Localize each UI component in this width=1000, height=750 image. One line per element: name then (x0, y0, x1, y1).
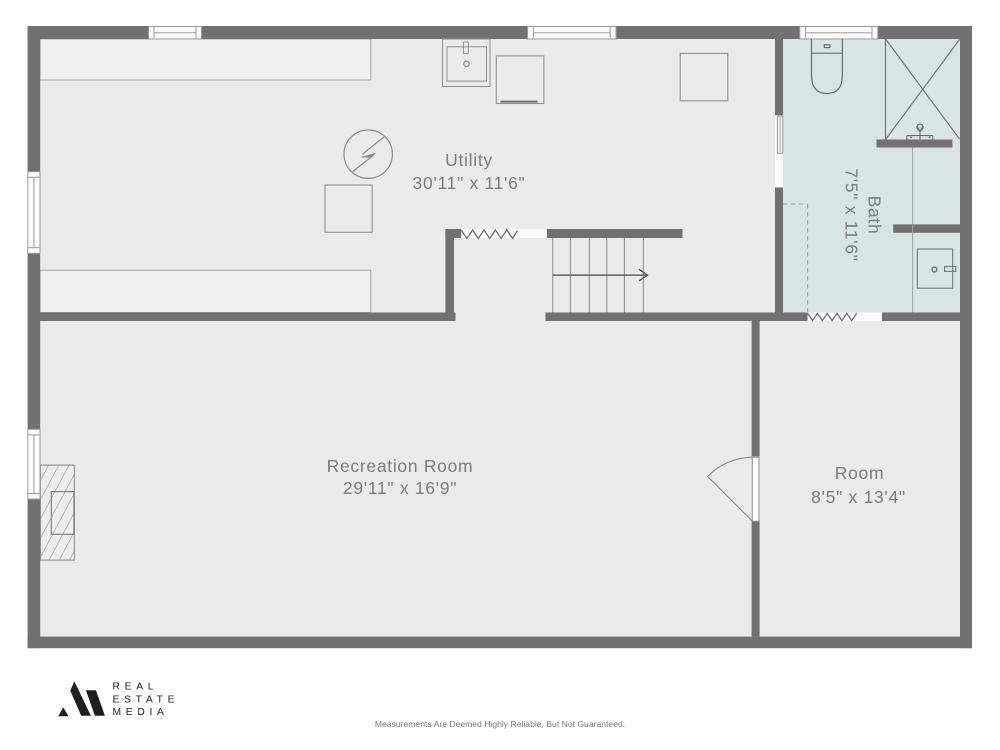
svg-text:Recreation Room: Recreation Room (327, 456, 474, 476)
svg-text:REAL: REAL (113, 682, 159, 693)
svg-text:Room: Room (835, 463, 884, 483)
svg-text:Bath: Bath (865, 196, 885, 235)
svg-text:ESTATE: ESTATE (113, 695, 180, 706)
svg-text:MEDIA: MEDIA (113, 707, 169, 718)
svg-text:Utility: Utility (445, 150, 493, 170)
svg-text:29'11" x 16'9": 29'11" x 16'9" (343, 478, 457, 498)
svg-text:7'5" x 11'6": 7'5" x 11'6" (842, 168, 862, 261)
svg-text:8'5" x 13'4": 8'5" x 13'4" (811, 487, 906, 507)
svg-text:30'11" x 11'6": 30'11" x 11'6" (413, 173, 526, 193)
svg-text:Measurements Are Deemed Highly: Measurements Are Deemed Highly Reliable,… (375, 719, 625, 729)
